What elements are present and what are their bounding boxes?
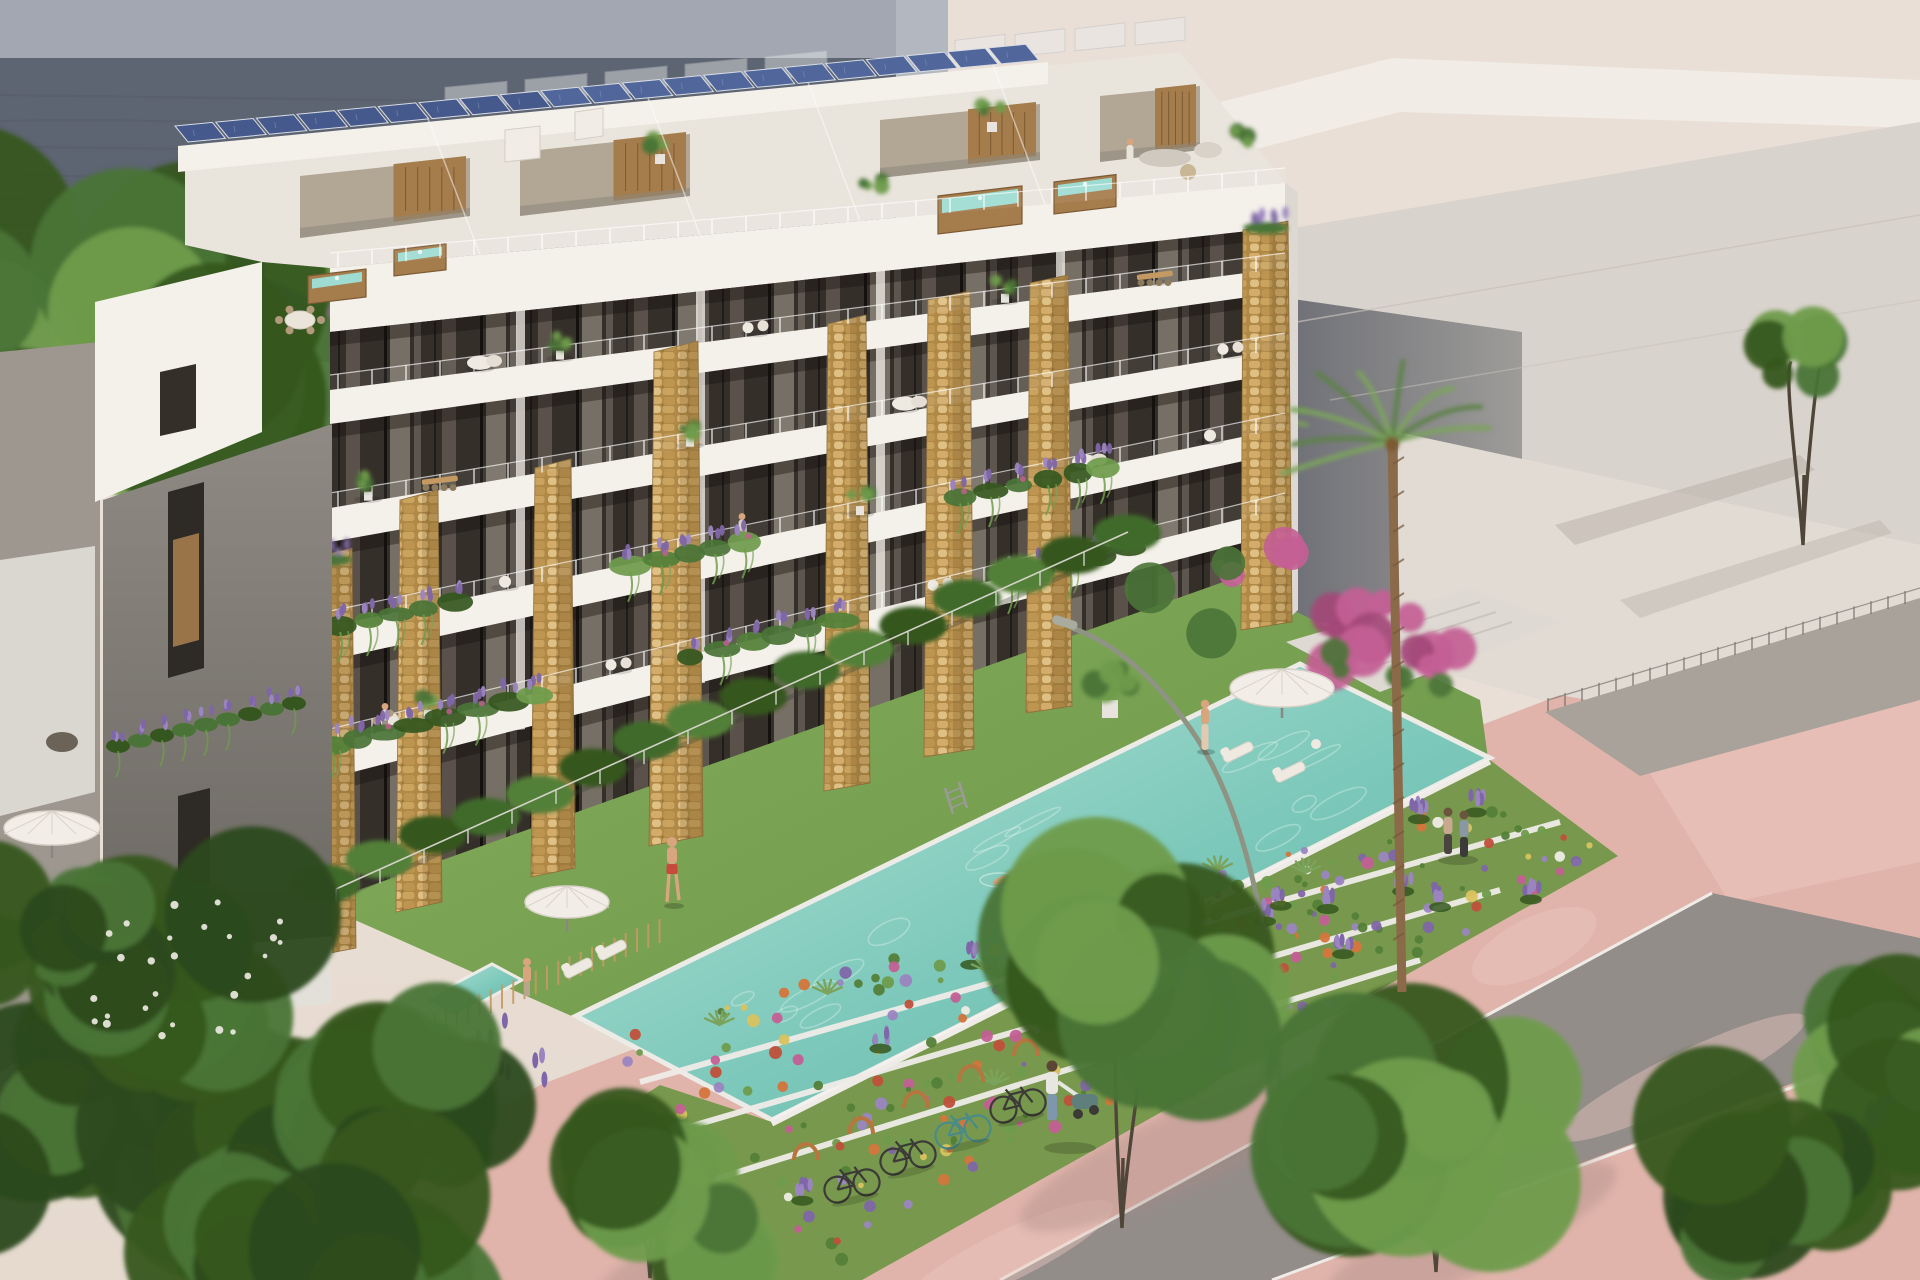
hedge-bush <box>1093 514 1161 552</box>
boundary-wall-left <box>0 546 95 816</box>
architectural-render <box>0 0 1920 1280</box>
hedge-bush <box>666 701 734 739</box>
hedge-bush <box>559 748 627 786</box>
bbq-grill <box>46 732 78 752</box>
penthouse-unit <box>1100 84 1200 162</box>
hedge-bush <box>826 629 894 667</box>
terrace-person <box>523 958 531 996</box>
render-canvas <box>0 0 1920 1280</box>
roof-vent <box>505 126 540 162</box>
stone-pier <box>824 315 870 791</box>
hedge-bush <box>933 579 1001 617</box>
street-tree <box>1251 983 1582 1272</box>
west-window <box>160 364 196 436</box>
stone-pier <box>649 341 703 846</box>
stone-pier <box>531 459 575 877</box>
hedge-bush <box>719 677 787 715</box>
wood-slat-shutter <box>173 533 199 647</box>
rooftop-person <box>1127 139 1134 162</box>
roof-vent <box>575 108 603 140</box>
